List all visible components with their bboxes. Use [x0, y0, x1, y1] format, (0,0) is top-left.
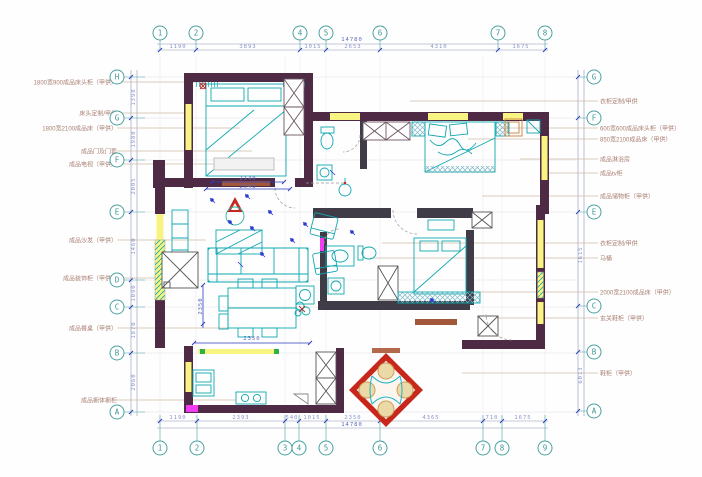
toilet-tank — [321, 127, 334, 133]
grid-bubble-bottom: 7 — [476, 441, 491, 456]
grid-bubble-left: C — [110, 300, 125, 315]
dim-segment: 3893 — [239, 44, 256, 50]
dim-segment: 1398 — [131, 88, 137, 105]
annotation-label: 成品餐桌（甲供） — [69, 324, 117, 333]
dim-total-bottom: 14780 — [341, 422, 363, 428]
dim-total-top: 14780 — [341, 37, 363, 43]
grid-bubble-bottom: 6 — [373, 441, 388, 456]
bathroom-2 — [320, 238, 398, 300]
grid-bubble-top: 2 — [189, 26, 204, 41]
annotation-label: 成品tv柜 — [600, 169, 623, 178]
grid-bubble-top: 6 — [373, 26, 388, 41]
grid-bubble-right: E — [587, 205, 602, 220]
dim-segment: 4310 — [430, 44, 447, 50]
grid-bubble-bottom: 4 — [292, 441, 307, 456]
grid-bubble-top: 1 — [153, 26, 168, 41]
x-cabinet — [162, 252, 198, 288]
grid-bubble-top: 7 — [491, 26, 506, 41]
annotation-label: 衣柜定制/甲供 — [600, 239, 638, 248]
grid-bubble-left: D — [110, 273, 125, 288]
grid-bubble-right: B — [587, 345, 602, 360]
annotation-label: 成品储物柜（甲供） — [600, 192, 654, 201]
dim-segment: 1190 — [169, 415, 186, 421]
dim-segment: 1675 — [514, 415, 531, 421]
dim-segment: 1675 — [512, 44, 529, 50]
grid-bubble-bottom: 3 — [278, 441, 293, 456]
dim-segment: 2350 — [344, 415, 361, 421]
fridge-cabinet — [316, 352, 336, 404]
grid-bubble-bottom: 1 — [153, 441, 168, 456]
dim-segment: 6013 — [578, 366, 584, 383]
dim-interior: 2350 — [243, 336, 260, 342]
grid-bubble-top: 8 — [538, 26, 553, 41]
dining-area — [219, 279, 310, 337]
dim-segment: 2393 — [232, 415, 249, 421]
grid-bubble-left: F — [110, 153, 125, 168]
grid-bubble-top: 4 — [293, 26, 308, 41]
grid-bubble-right: F — [587, 111, 602, 126]
desk — [428, 220, 454, 230]
grid-bubble-right: A — [587, 404, 602, 419]
dim-segment: 540 — [286, 415, 299, 421]
annotation-label: 600宽600成品床头柜（甲供） — [600, 124, 680, 133]
interior-dimensions — [192, 180, 312, 345]
grid-bubble-right: C — [587, 299, 602, 314]
grid-bubble-left: E — [110, 205, 125, 220]
annotation-label: 850宽2100成品床（甲供） — [600, 135, 671, 144]
dim-segment: 2005 — [131, 177, 137, 194]
door-panel — [186, 405, 198, 412]
vanity — [326, 246, 354, 266]
grid-bubble-top: 5 — [319, 26, 334, 41]
dim-segment: 1015 — [304, 44, 321, 50]
dim-segment: 1015 — [303, 415, 320, 421]
grid-bubble-left: G — [110, 111, 125, 126]
side-table — [296, 286, 314, 304]
grid-lines — [140, 56, 576, 418]
washer — [317, 165, 332, 180]
dim-segment: 1190 — [169, 44, 186, 50]
door-panel — [320, 238, 324, 251]
dim-segment: 1460 — [131, 237, 137, 254]
dim-interior: 2140 — [239, 176, 256, 182]
grid-bubble-right: G — [587, 70, 602, 85]
stove — [236, 392, 266, 404]
dim-segment: 710 — [486, 415, 499, 421]
bathroom-1 — [317, 127, 351, 196]
grid-bubble-bottom: 8 — [495, 441, 510, 456]
annotation-label: 马桶 — [600, 254, 612, 263]
grid-bubble-left: A — [110, 405, 125, 420]
wardrobe — [378, 266, 398, 300]
grid-bubble-bottom: 5 — [319, 441, 334, 456]
annotation-label: 2000宽2100成品床（甲供） — [600, 288, 675, 297]
dim-segment: 2060 — [131, 373, 137, 390]
master-bedroom — [200, 79, 304, 186]
grid-bubble-bottom: 2 — [190, 441, 205, 456]
dim-segment: 1090 — [131, 284, 137, 301]
floor-plan-drawing: 1 2 4 5 6 7 8 1 2 3 4 5 6 7 8 9 H G F E … — [0, 0, 702, 477]
toilet-bowl — [362, 247, 376, 259]
dim-segment: 4365 — [422, 415, 439, 421]
annotation-label: 1800宽2100成品床（甲供） — [42, 124, 117, 133]
annotation-label: 鞋柜（甲供） — [600, 369, 636, 378]
dim-interior: 2350 — [198, 297, 204, 314]
grid-bubble-left: H — [110, 70, 125, 85]
kitchen — [186, 349, 336, 412]
grid-bubble-bottom: 9 — [538, 441, 553, 456]
dimension-ticks — [129, 48, 580, 423]
bedroom-2 — [363, 119, 540, 173]
sink — [339, 184, 351, 196]
dim-interior: 2948 — [239, 184, 256, 190]
washer — [328, 278, 344, 294]
dim-segment: 1615 — [578, 246, 584, 263]
annotation-label: 成品沙发（甲供） — [69, 236, 117, 245]
grid-bubble-left: B — [110, 346, 125, 361]
dim-segment: 2653 — [344, 44, 361, 50]
wardrobe — [284, 79, 304, 135]
sofa — [208, 248, 308, 282]
annotation-label: 玄关鞋柜（甲供） — [600, 314, 648, 323]
annotation-label: 1800宽900成品床头柜（甲供） — [34, 78, 117, 87]
annotation-label: 衣柜定制/甲供 — [600, 97, 638, 106]
dim-segment: 1980 — [131, 130, 137, 147]
toilet-bowl — [321, 133, 333, 149]
annotation-label: 成品橱体橱柜 — [81, 396, 117, 405]
dim-segment: 1870 — [131, 321, 137, 338]
annotation-label: 成品淋浴房 — [600, 155, 630, 164]
